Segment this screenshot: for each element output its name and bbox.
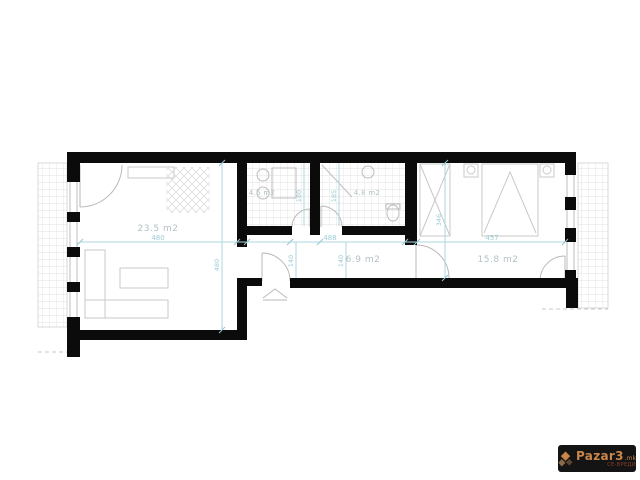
dim-living-height: 480 <box>213 259 221 271</box>
label-kitchen: 4.5 m2 <box>249 189 275 197</box>
label-bedroom: 15.8 m2 <box>478 255 519 265</box>
floorplan-drawing: 480 488 457 480 346 140 140 180 185 23.5… <box>0 0 640 480</box>
dim-bathroom-height: 185 <box>330 190 338 202</box>
rug <box>166 167 210 213</box>
watermark-badge: Pazar3 .mk СЕ-ВРЕДИ <box>558 445 636 472</box>
watermark-text: Pazar3 .mk СЕ-ВРЕДИ <box>576 450 636 468</box>
dim-kitchen-height: 180 <box>295 190 303 202</box>
watermark-tld: .mk <box>625 456 636 462</box>
bed <box>482 164 538 236</box>
dim-bedroom-width: 457 <box>485 234 498 242</box>
label-bathroom: 4.8 m2 <box>354 189 380 197</box>
door-bedroom-terrace <box>540 256 565 281</box>
label-hallway: 6.9 m2 <box>346 255 381 265</box>
dim-bedroom-height: 346 <box>435 214 443 226</box>
entrance-steps <box>263 289 287 300</box>
dim-hallway-height-a: 140 <box>287 255 295 267</box>
door-bedroom <box>416 245 449 278</box>
label-living-room: 23.5 m2 <box>138 224 179 234</box>
dim-hallway-height-b: 140 <box>337 255 345 267</box>
door-living-entry <box>80 165 122 207</box>
watermark-brand: Pazar3 <box>576 450 624 462</box>
dim-hallway-width: 488 <box>323 234 336 242</box>
gem-logo-icon <box>558 450 573 468</box>
floorplan-page: 480 488 457 480 346 140 140 180 185 23.5… <box>0 0 640 480</box>
door-entrance <box>262 253 290 281</box>
windows-right-wall <box>567 175 574 270</box>
watermark-tagline: СЕ-ВРЕДИ <box>607 463 636 468</box>
dim-living-width: 480 <box>151 234 164 242</box>
